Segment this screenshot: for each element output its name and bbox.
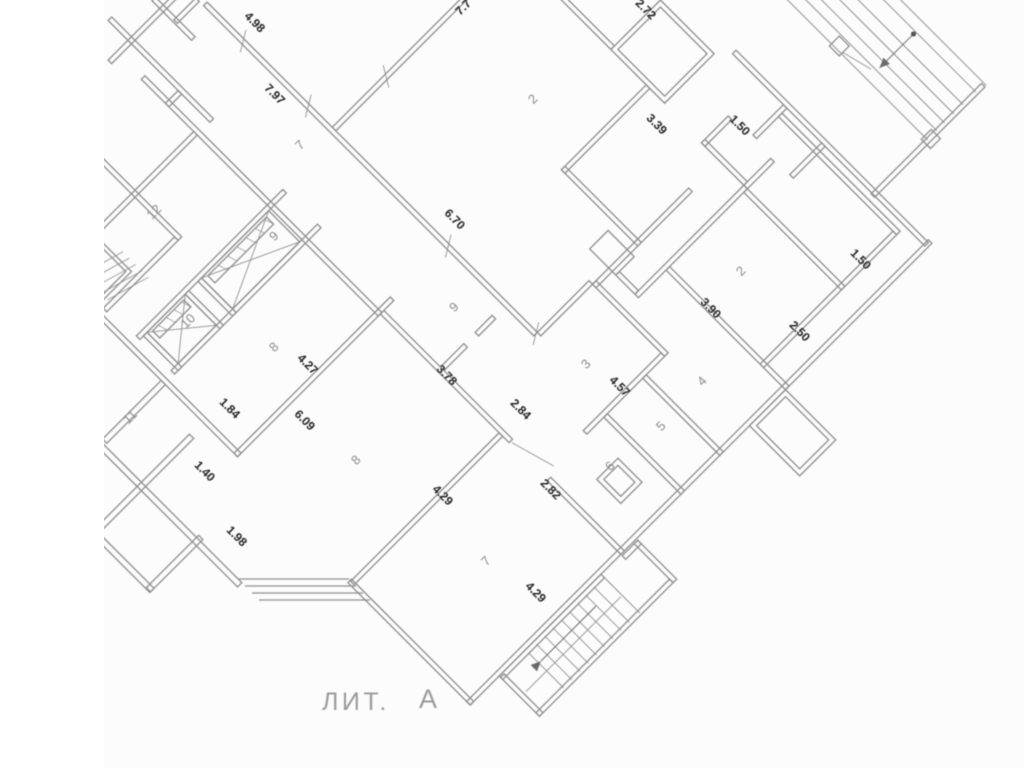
svg-text:А: А [419,684,437,714]
svg-text:ЛИТ.: ЛИТ. [322,688,390,716]
